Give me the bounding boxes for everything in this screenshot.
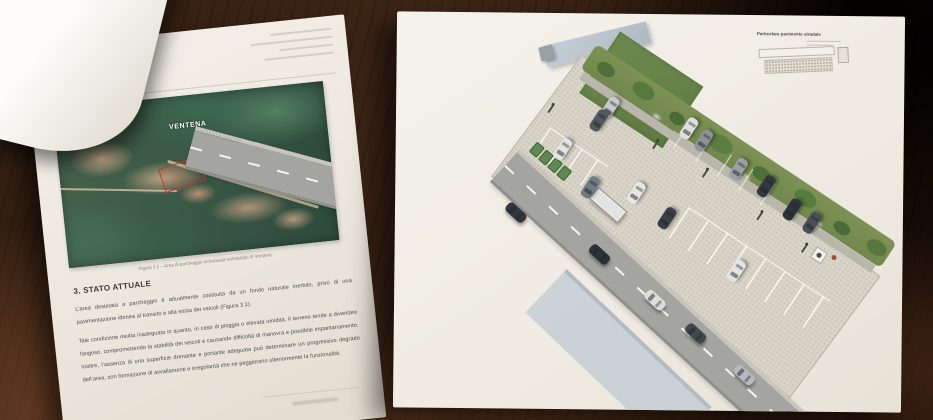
footer-divider — [263, 387, 359, 398]
footer-text-smudge — [292, 397, 338, 406]
letterhead-text-lines — [250, 28, 334, 62]
parking-site-plan — [393, 11, 905, 412]
desk-photo: VENTENA Area di parcheggio attuale Verso… — [0, 0, 933, 420]
village-road-line — [57, 188, 177, 192]
red-marker — [832, 255, 837, 260]
section-heading: 3. STATO ATTUALE — [73, 279, 152, 296]
site-plan-page: Particolare pavimento stradale — [393, 11, 905, 412]
